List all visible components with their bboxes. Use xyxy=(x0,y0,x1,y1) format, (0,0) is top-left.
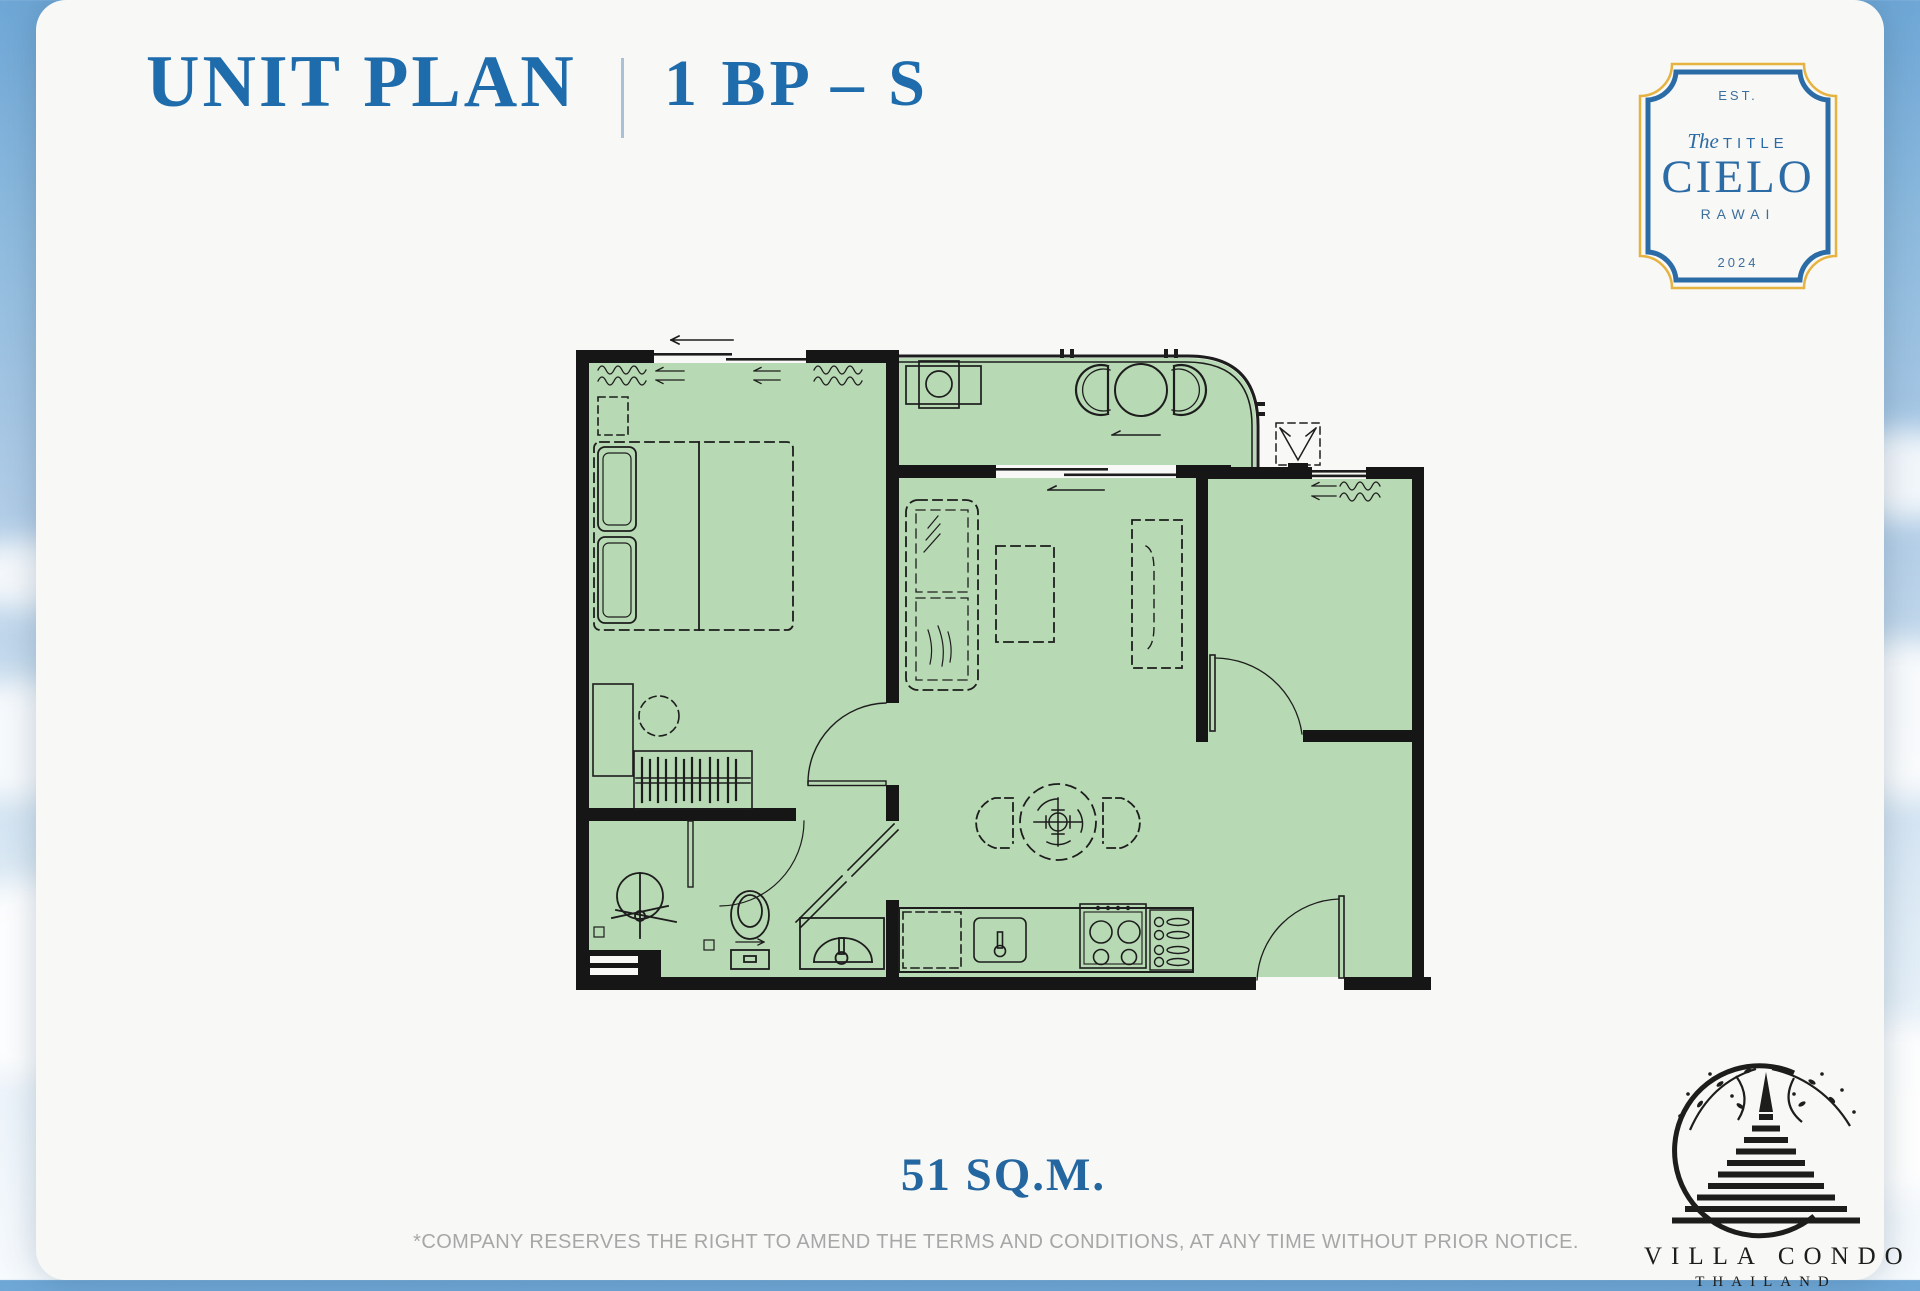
entrance-opening xyxy=(1256,977,1344,990)
content-card: UNIT PLAN 1 BP – S EST. The TITLE CIELO … xyxy=(36,0,1884,1280)
floor-plan-svg xyxy=(576,325,1431,990)
unit-code: 1 BP – S xyxy=(664,46,929,122)
developer-country: THAILAND xyxy=(1644,1274,1888,1291)
page-title: UNIT PLAN xyxy=(146,40,577,125)
sliding-door xyxy=(996,465,1176,478)
room-floors xyxy=(589,358,1424,977)
developer-name: VILLA CONDO xyxy=(1644,1243,1888,1271)
brochure-page: UNIT PLAN 1 BP – S EST. The TITLE CIELO … xyxy=(0,0,1920,1280)
badge-year: 2024 xyxy=(1632,255,1844,270)
bedroom-window xyxy=(654,350,806,363)
room2-window xyxy=(1304,467,1374,479)
title-divider xyxy=(621,58,624,138)
floor-plan xyxy=(576,325,1431,1005)
developer-logo: VILLA CONDO THAILAND xyxy=(1644,1056,1888,1291)
badge-project-name: CIELO xyxy=(1661,154,1814,202)
disclaimer-text: *COMPANY RESERVES THE RIGHT TO AMEND THE… xyxy=(36,1231,1920,1254)
project-badge: EST. The TITLE CIELO RAWAI 2024 xyxy=(1632,60,1844,292)
unit-area: 51 SQ.M. xyxy=(576,1148,1431,1202)
villa-condo-logo-icon xyxy=(1644,1056,1888,1242)
badge-location: RAWAI xyxy=(1701,206,1776,222)
condenser-unit xyxy=(1276,423,1320,469)
stupa-icon xyxy=(1672,1072,1860,1224)
badge-est: EST. xyxy=(1718,88,1757,103)
